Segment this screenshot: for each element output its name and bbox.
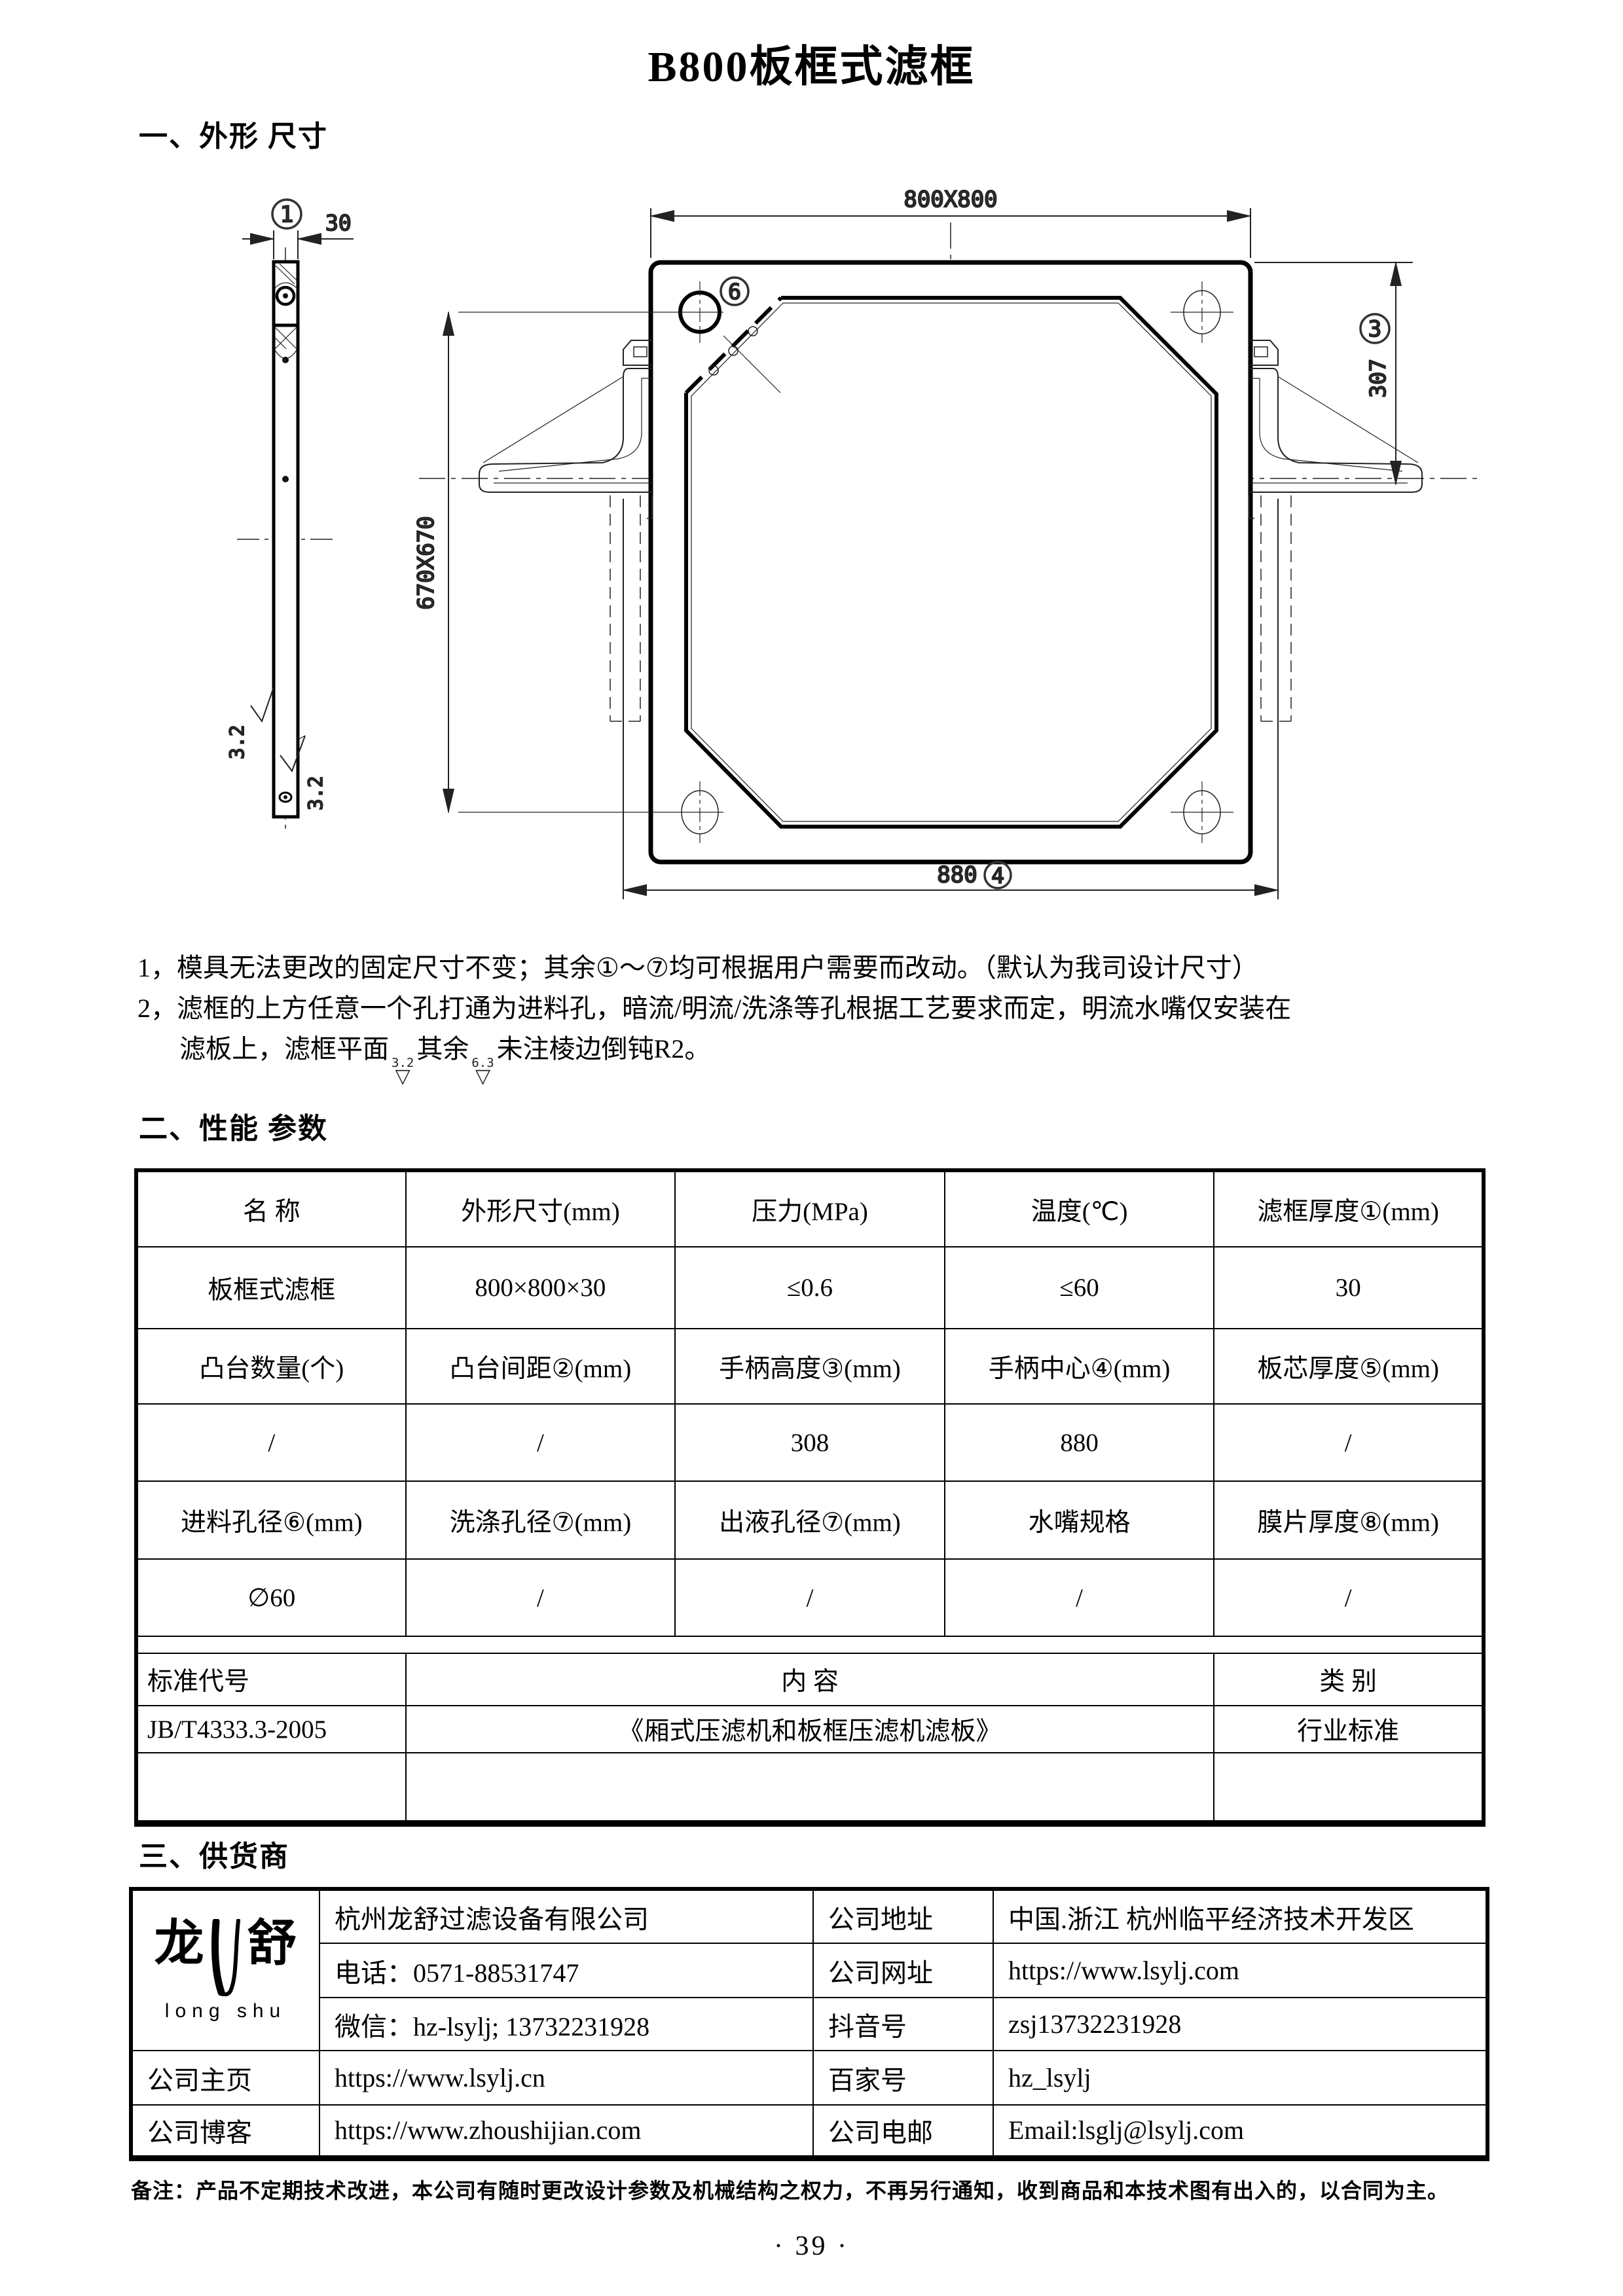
dim-307: 307 (1365, 359, 1391, 398)
param-header: 手柄高度③(mm) (675, 1329, 945, 1404)
table-row: 电话：0571-88531747 公司网址 https://www.lsylj.… (131, 1943, 1487, 1998)
param-header: 凸台间距②(mm) (406, 1329, 676, 1404)
email-value: Email:lsglj@lsylj.com (993, 2105, 1487, 2158)
callout-3: 3 (1368, 316, 1381, 342)
homepage-label: 公司主页 (131, 2051, 319, 2105)
param-value: / (1214, 1404, 1484, 1481)
wechat-value: 微信：hz-lsylj; 13732231928 (319, 1998, 813, 2051)
standard-content-header: 内 容 (406, 1653, 1214, 1706)
standard-category-value: 行业标准 (1214, 1706, 1484, 1753)
side-view: 1 30 3.2 3.2 (226, 200, 354, 833)
table-row: ∅60 / / / / (136, 1559, 1484, 1636)
param-value: / (406, 1404, 676, 1481)
page-number: · 39 · (0, 2231, 1623, 2262)
standard-code-header: 标准代号 (136, 1653, 406, 1706)
param-header: 凸台数量(个) (136, 1329, 406, 1404)
param-header: 出液孔径⑦(mm) (675, 1481, 945, 1559)
address-label: 公司地址 (813, 1889, 993, 1943)
param-header: 外形尺寸(mm) (406, 1170, 676, 1247)
section-2-heading: 二、性能 参数 (139, 1105, 328, 1147)
logo-subtitle: long shu (133, 2000, 318, 2022)
param-header: 压力(MPa) (675, 1170, 945, 1247)
callout-1: 1 (280, 202, 293, 228)
spacer-cell (136, 1636, 1484, 1653)
standard-category-header: 类 别 (1214, 1653, 1484, 1706)
param-header: 板芯厚度⑤(mm) (1214, 1329, 1484, 1404)
standard-code-value: JB/T4333.3-2005 (136, 1706, 406, 1753)
note-3: 滤板上，滤框平面3.2▽其余6.3▽未注棱边倒钝R2。 (137, 1029, 1525, 1086)
roughness-6-3-symbol: 6.3▽ (471, 1057, 494, 1086)
datasheet-page: { "page": { "title": "B800板框式滤框", "page_… (0, 0, 1623, 2296)
drawing-notes: 1，模具无法更改的固定尺寸不变；其余①～⑦均可根据用户需要而改动。（默认为我司设… (137, 948, 1525, 1086)
param-value: / (945, 1559, 1214, 1636)
callout-4: 4 (991, 863, 1004, 888)
phone-value: 电话：0571-88531747 (319, 1943, 813, 1998)
dim-30: 30 (325, 210, 352, 236)
spacer-row (136, 1636, 1484, 1653)
param-value: / (1214, 1559, 1484, 1636)
dim-800x800: 800X800 (903, 187, 997, 213)
blog-label: 公司博客 (131, 2105, 319, 2158)
table-row: / / 308 880 / (136, 1404, 1484, 1481)
dim-670x670: 670X670 (413, 516, 439, 609)
table-row: 板框式滤框 800×800×30 ≤0.6 ≤60 30 (136, 1247, 1484, 1329)
address-value: 中国.浙江 杭州临平经济技术开发区 (993, 1889, 1487, 1943)
param-value: 308 (675, 1404, 945, 1481)
param-value: / (406, 1559, 676, 1636)
note-2: 2，滤框的上方任意一个孔打通为进料孔，暗流/明流/洗涤等孔根据工艺要求而定，明流… (137, 988, 1525, 1029)
param-header: 水嘴规格 (945, 1481, 1214, 1559)
douyin-label: 抖音号 (813, 1998, 993, 2051)
callout-6: 6 (728, 279, 741, 304)
supplier-table: 龙舒 long shu 杭州龙舒过滤设备有限公司 公司地址 中国.浙江 杭州临平… (129, 1887, 1489, 2161)
param-value: 800×800×30 (406, 1247, 676, 1329)
dim-880: 880 (937, 862, 977, 888)
param-header: 洗涤孔径⑦(mm) (406, 1481, 676, 1559)
roughness-left: 3.2 (226, 687, 274, 759)
company-logo: 龙舒 long shu (131, 1889, 319, 2051)
homepage-value: https://www.lsylj.cn (319, 2051, 813, 2105)
table-row: 微信：hz-lsylj; 13732231928 抖音号 zsj13732231… (131, 1998, 1487, 2051)
roughness-3-2-symbol: 3.2▽ (392, 1057, 414, 1086)
logo-char-left: 龙 (155, 1919, 204, 1969)
company-name: 杭州龙舒过滤设备有限公司 (319, 1889, 813, 1943)
empty-cell (406, 1753, 1214, 1823)
website-value: https://www.lsylj.com (993, 1943, 1487, 1998)
dimension-drawing: 1 30 3.2 3.2 (0, 0, 1623, 982)
empty-cell (1214, 1753, 1484, 1823)
email-label: 公司电邮 (813, 2105, 993, 2158)
table-row: 名 称 外形尺寸(mm) 压力(MPa) 温度(℃) 滤框厚度①(mm) (136, 1170, 1484, 1247)
standard-content-value: 《厢式压滤机和板框压滤机滤板》 (406, 1706, 1214, 1753)
table-row (136, 1753, 1484, 1823)
param-value: 板框式滤框 (136, 1247, 406, 1329)
param-value: ≤60 (945, 1247, 1214, 1329)
empty-cell (136, 1753, 406, 1823)
param-value: / (136, 1404, 406, 1481)
param-header: 温度(℃) (945, 1170, 1214, 1247)
table-row: 龙舒 long shu 杭州龙舒过滤设备有限公司 公司地址 中国.浙江 杭州临平… (131, 1889, 1487, 1943)
parameter-table: 名 称 外形尺寸(mm) 压力(MPa) 温度(℃) 滤框厚度①(mm) 板框式… (134, 1168, 1486, 1827)
param-header: 膜片厚度⑧(mm) (1214, 1481, 1484, 1559)
website-label: 公司网址 (813, 1943, 993, 1998)
param-value: / (675, 1559, 945, 1636)
rough-right-value: 3.2 (304, 776, 327, 810)
logo-char-right: 舒 (247, 1919, 297, 1969)
param-header: 名 称 (136, 1170, 406, 1247)
table-row: JB/T4333.3-2005 《厢式压滤机和板框压滤机滤板》 行业标准 (136, 1706, 1484, 1753)
param-header: 滤框厚度①(mm) (1214, 1170, 1484, 1247)
footer-note: 备注：产品不定期技术改进，本公司有随时更改设计参数及机械结构之权力，不再另行通知… (131, 2174, 1519, 2204)
table-row: 标准代号 内 容 类 别 (136, 1653, 1484, 1706)
table-row: 公司主页 https://www.lsylj.cn 百家号 hz_lsylj (131, 2051, 1487, 2105)
douyin-value: zsj13732231928 (993, 1998, 1487, 2051)
baijia-label: 百家号 (813, 2051, 993, 2105)
param-value: ≤0.6 (675, 1247, 945, 1329)
main-view: 6 800X800 3 307 880 4 670X670 (413, 187, 1482, 899)
param-header: 手柄中心④(mm) (945, 1329, 1214, 1404)
param-value: ∅60 (136, 1559, 406, 1636)
blog-value: https://www.zhoushijian.com (319, 2105, 813, 2158)
param-value: 880 (945, 1404, 1214, 1481)
param-value: 30 (1214, 1247, 1484, 1329)
logo-mark-icon (206, 1919, 246, 1996)
table-row: 进料孔径⑥(mm) 洗涤孔径⑦(mm) 出液孔径⑦(mm) 水嘴规格 膜片厚度⑧… (136, 1481, 1484, 1559)
table-row: 凸台数量(个) 凸台间距②(mm) 手柄高度③(mm) 手柄中心④(mm) 板芯… (136, 1329, 1484, 1404)
table-row: 公司博客 https://www.zhoushijian.com 公司电邮 Em… (131, 2105, 1487, 2158)
rough-left-value: 3.2 (226, 725, 248, 759)
note-1: 1，模具无法更改的固定尺寸不变；其余①～⑦均可根据用户需要而改动。（默认为我司设… (137, 948, 1525, 988)
baijia-value: hz_lsylj (993, 2051, 1487, 2105)
section-3-heading: 三、供货商 (139, 1833, 289, 1874)
param-header: 进料孔径⑥(mm) (136, 1481, 406, 1559)
